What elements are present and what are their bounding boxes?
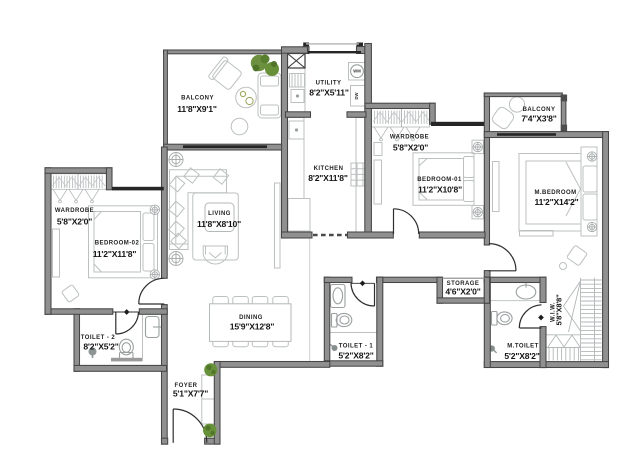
svg-text:WM: WM xyxy=(353,69,361,74)
svg-text:5'8"X8'8": 5'8"X8'8" xyxy=(555,294,564,326)
svg-text:BEDROOM-02: BEDROOM-02 xyxy=(95,241,140,247)
svg-text:11'2"X14'2": 11'2"X14'2" xyxy=(535,197,579,207)
svg-text:M.BEDROOM: M.BEDROOM xyxy=(534,190,576,196)
svg-text:LIVING: LIVING xyxy=(208,211,231,217)
svg-text:5'2"X8'2": 5'2"X8'2" xyxy=(338,351,373,361)
svg-text:TOILET - 1: TOILET - 1 xyxy=(339,344,374,350)
svg-text:M.TOILET: M.TOILET xyxy=(507,344,539,350)
svg-text:5'8"X2'0": 5'8"X2'0" xyxy=(57,217,92,227)
svg-text:4'6"X2'0": 4'6"X2'0" xyxy=(445,286,480,296)
svg-text:BALCONY: BALCONY xyxy=(181,96,214,102)
svg-text:11'2"X10'8": 11'2"X10'8" xyxy=(418,185,462,195)
svg-text:11'2"X11'8": 11'2"X11'8" xyxy=(93,249,137,259)
svg-text:DINING: DINING xyxy=(239,315,263,321)
svg-text:TOILET - 2: TOILET - 2 xyxy=(81,335,116,341)
svg-text:8'2"X5'2": 8'2"X5'2" xyxy=(83,342,118,352)
svg-text:KITCHEN: KITCHEN xyxy=(314,166,344,172)
svg-text:UTILITY: UTILITY xyxy=(316,81,342,87)
svg-text:BALCONY: BALCONY xyxy=(523,107,556,113)
svg-text:8'2"X5'11": 8'2"X5'11" xyxy=(309,88,349,98)
svg-text:8'2"X11'8": 8'2"X11'8" xyxy=(308,173,348,183)
svg-text:5'2"X8'2": 5'2"X8'2" xyxy=(504,351,539,361)
svg-text:7'4"X3'8": 7'4"X3'8" xyxy=(521,114,556,124)
svg-text:5'1"X7'7": 5'1"X7'7" xyxy=(173,389,208,399)
svg-text:WARDROBE: WARDROBE xyxy=(55,208,94,214)
svg-text:11'8"X9'1": 11'8"X9'1" xyxy=(177,104,217,114)
svg-text:DW: DW xyxy=(354,92,359,99)
svg-text:5'8"X2'0": 5'8"X2'0" xyxy=(393,143,428,153)
svg-text:11'8"X8'10": 11'8"X8'10" xyxy=(197,219,241,229)
svg-text:WARDROBE: WARDROBE xyxy=(390,135,429,141)
svg-text:15'9"X12'8": 15'9"X12'8" xyxy=(230,322,275,332)
svg-text:BEDROOM-01: BEDROOM-01 xyxy=(417,177,462,183)
